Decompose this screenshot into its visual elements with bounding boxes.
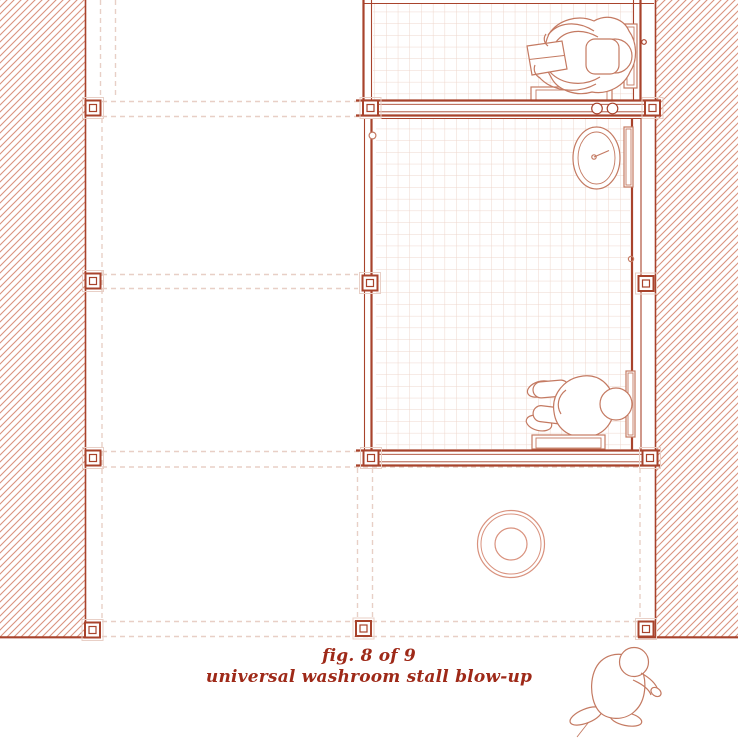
universal-stall <box>356 118 661 466</box>
column-marker <box>636 619 657 640</box>
column-marker <box>360 98 381 119</box>
column-marker <box>642 98 663 119</box>
column-marker <box>360 273 381 294</box>
door-hardware <box>607 103 618 114</box>
door-hardware <box>592 103 603 114</box>
column-marker <box>636 273 657 294</box>
person-head <box>600 388 632 420</box>
column-marker <box>82 620 103 641</box>
wall-fitting <box>642 40 647 45</box>
door-hinge <box>369 132 376 139</box>
column-marker <box>640 448 661 469</box>
wash-basin <box>573 127 620 189</box>
plan-drawing: fig. 8 of 9 universal washroom stall blo… <box>0 0 738 738</box>
right-wall-hatch <box>655 0 738 637</box>
figure-caption: fig. 8 of 9 universal washroom stall blo… <box>0 646 738 688</box>
upper-stall <box>356 0 661 116</box>
figure-title: universal washroom stall blow-up <box>0 667 738 688</box>
held-object <box>527 41 567 75</box>
column-marker <box>353 618 374 639</box>
column-marker <box>83 448 104 469</box>
column-marker <box>83 271 104 292</box>
bench <box>532 435 605 449</box>
left-wall-section <box>0 0 101 638</box>
grab-bar <box>624 127 633 187</box>
figure-number: fig. 8 of 9 <box>0 646 738 667</box>
column-marker <box>83 98 104 119</box>
column-marker <box>361 448 382 469</box>
left-wall-hatch <box>0 0 85 637</box>
person-shoulders <box>586 39 619 74</box>
plan-svg <box>0 0 738 738</box>
